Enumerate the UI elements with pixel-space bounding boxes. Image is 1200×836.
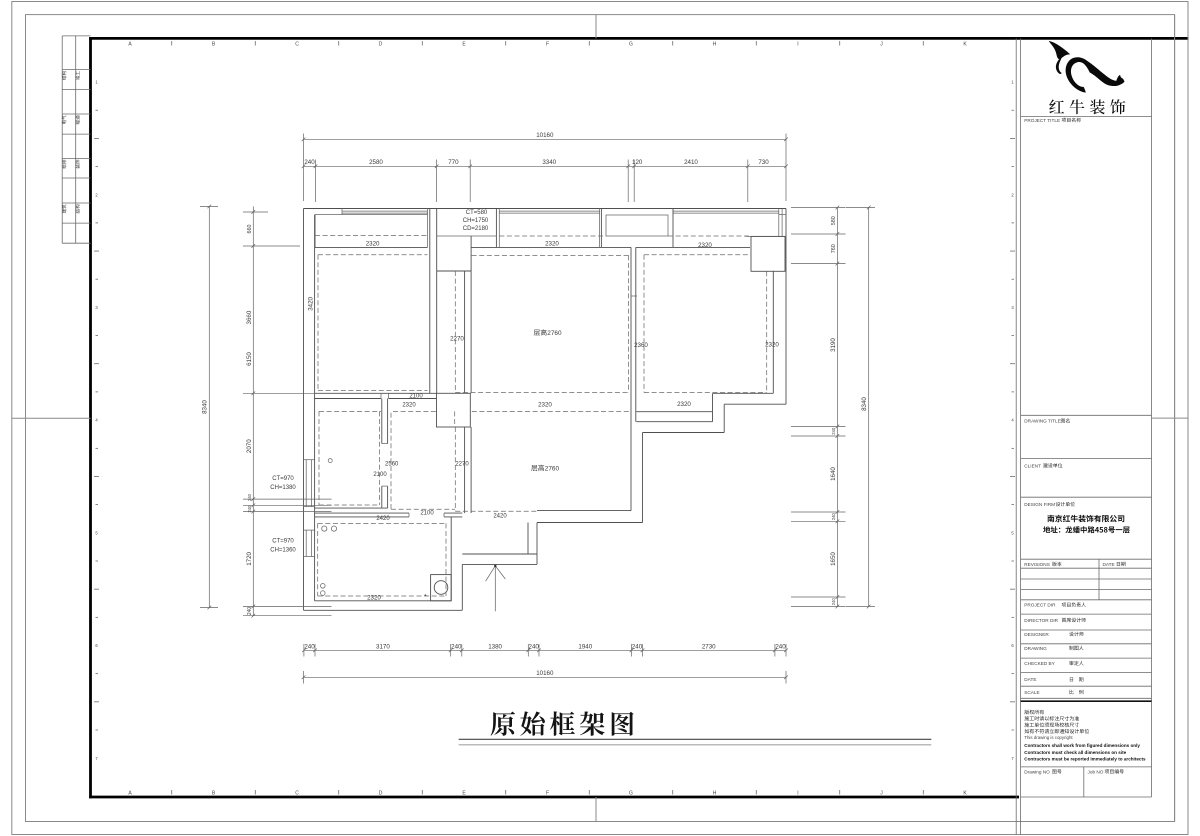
svg-text:2100: 2100 (409, 394, 423, 400)
svg-text:I: I (797, 791, 798, 797)
svg-text:2560: 2560 (385, 462, 399, 468)
svg-text:3340: 3340 (542, 159, 556, 166)
svg-text:3170: 3170 (376, 643, 390, 650)
svg-text:730: 730 (758, 159, 769, 166)
svg-text:CH=1380: CH=1380 (270, 485, 296, 491)
svg-text:240: 240 (304, 159, 315, 166)
svg-text:CT=970: CT=970 (272, 476, 294, 482)
svg-text:2070: 2070 (246, 439, 253, 453)
svg-text:2420: 2420 (376, 516, 390, 522)
svg-text:120: 120 (632, 159, 643, 166)
svg-text:G: G (629, 42, 633, 48)
svg-text:Contractors shall work from fi: Contractors shall work from figured dime… (1024, 743, 1140, 748)
svg-text:C: C (295, 791, 299, 797)
svg-text:PROJECT DIR: PROJECT DIR (1024, 603, 1056, 608)
svg-text:DRAWING TITLE: DRAWING TITLE (1024, 419, 1060, 424)
svg-text:DESIGNER: DESIGNER (1024, 632, 1049, 637)
svg-text:Contractors must be reported i: Contractors must be reported immediately… (1024, 757, 1146, 762)
svg-text:Job NO: Job NO (1088, 769, 1104, 774)
svg-text:CH=1750: CH=1750 (463, 218, 489, 224)
svg-text:I: I (797, 42, 798, 48)
svg-text:Contractors must check all dim: Contractors must check all dimensions on… (1024, 750, 1126, 755)
svg-text:3660: 3660 (246, 310, 253, 324)
svg-text:2730: 2730 (702, 643, 716, 650)
svg-text:10160: 10160 (536, 132, 554, 139)
svg-text:1720: 1720 (246, 551, 253, 565)
svg-text:H: H (713, 42, 717, 48)
svg-text:C: C (295, 42, 299, 48)
svg-text:DESIGN FIRM: DESIGN FIRM (1024, 502, 1055, 507)
svg-text:580: 580 (831, 216, 837, 225)
svg-text:CHECKED BY: CHECKED BY (1024, 661, 1055, 666)
svg-text:REVISIONS: REVISIONS (1024, 562, 1050, 567)
svg-text:DRAWING: DRAWING (1024, 646, 1047, 651)
svg-text:760: 760 (831, 244, 837, 253)
svg-text:240: 240 (247, 505, 252, 513)
svg-text:3190: 3190 (830, 338, 837, 352)
svg-text:2760: 2760 (545, 466, 560, 473)
svg-text:G: G (629, 791, 633, 797)
svg-text:240: 240 (831, 598, 836, 606)
svg-text:F: F (546, 791, 549, 797)
svg-text:2320: 2320 (677, 401, 691, 408)
svg-text:2320: 2320 (366, 241, 380, 248)
svg-text:CH=1360: CH=1360 (270, 547, 296, 553)
svg-text:240: 240 (831, 427, 836, 435)
svg-text:240: 240 (304, 643, 315, 650)
svg-text:1640: 1640 (830, 467, 837, 481)
svg-text:240: 240 (831, 512, 836, 520)
svg-text:240: 240 (247, 607, 253, 616)
svg-text:CD=2180: CD=2180 (463, 226, 489, 232)
svg-text:DIRECTOR DIR: DIRECTOR DIR (1024, 618, 1058, 623)
svg-text:This drawing is copyright: This drawing is copyright (1024, 735, 1073, 740)
svg-text:2320: 2320 (538, 401, 552, 408)
svg-text:F: F (546, 42, 549, 48)
svg-text:2320: 2320 (698, 242, 712, 249)
svg-text:240: 240 (247, 493, 252, 501)
svg-text:240: 240 (775, 643, 786, 650)
svg-text:10160: 10160 (536, 670, 554, 677)
svg-text:240: 240 (451, 643, 462, 650)
svg-text:H: H (713, 791, 717, 797)
svg-text:3420: 3420 (308, 296, 315, 310)
svg-text:8340: 8340 (861, 397, 868, 411)
svg-text:2320: 2320 (765, 342, 779, 349)
svg-text:CT=970: CT=970 (272, 539, 294, 545)
svg-text:660: 660 (247, 224, 253, 233)
svg-text:D: D (379, 42, 383, 48)
svg-text:CLIENT: CLIENT (1024, 463, 1041, 468)
svg-text:1380: 1380 (488, 643, 502, 650)
svg-text:2410: 2410 (684, 159, 698, 166)
svg-text:2360: 2360 (634, 342, 648, 349)
svg-text:CT=580: CT=580 (466, 210, 488, 216)
svg-text:2100: 2100 (420, 510, 434, 516)
svg-text:SCALE: SCALE (1024, 690, 1039, 695)
svg-text:2320: 2320 (367, 595, 381, 602)
svg-text:8340: 8340 (202, 400, 209, 414)
svg-text:D: D (379, 791, 383, 797)
svg-text:DATE: DATE (1103, 562, 1115, 567)
svg-text:1650: 1650 (830, 552, 837, 566)
svg-text:2100: 2100 (373, 472, 387, 478)
svg-text:6150: 6150 (246, 352, 253, 366)
svg-text:2320: 2320 (545, 241, 559, 248)
svg-text:2320: 2320 (402, 402, 416, 408)
svg-text:1940: 1940 (578, 643, 592, 650)
svg-text:2420: 2420 (493, 513, 507, 519)
svg-text:2270: 2270 (455, 462, 469, 468)
svg-text:DATE: DATE (1024, 677, 1036, 682)
svg-text:240: 240 (632, 643, 643, 650)
svg-text:240: 240 (529, 643, 540, 650)
svg-text:2270: 2270 (450, 336, 464, 343)
svg-text:PROJECT TITLE: PROJECT TITLE (1024, 118, 1060, 123)
svg-text:770: 770 (448, 159, 459, 166)
svg-text:2760: 2760 (547, 330, 562, 337)
svg-text:Drawing NO: Drawing NO (1024, 769, 1050, 774)
svg-text:2580: 2580 (369, 159, 383, 166)
